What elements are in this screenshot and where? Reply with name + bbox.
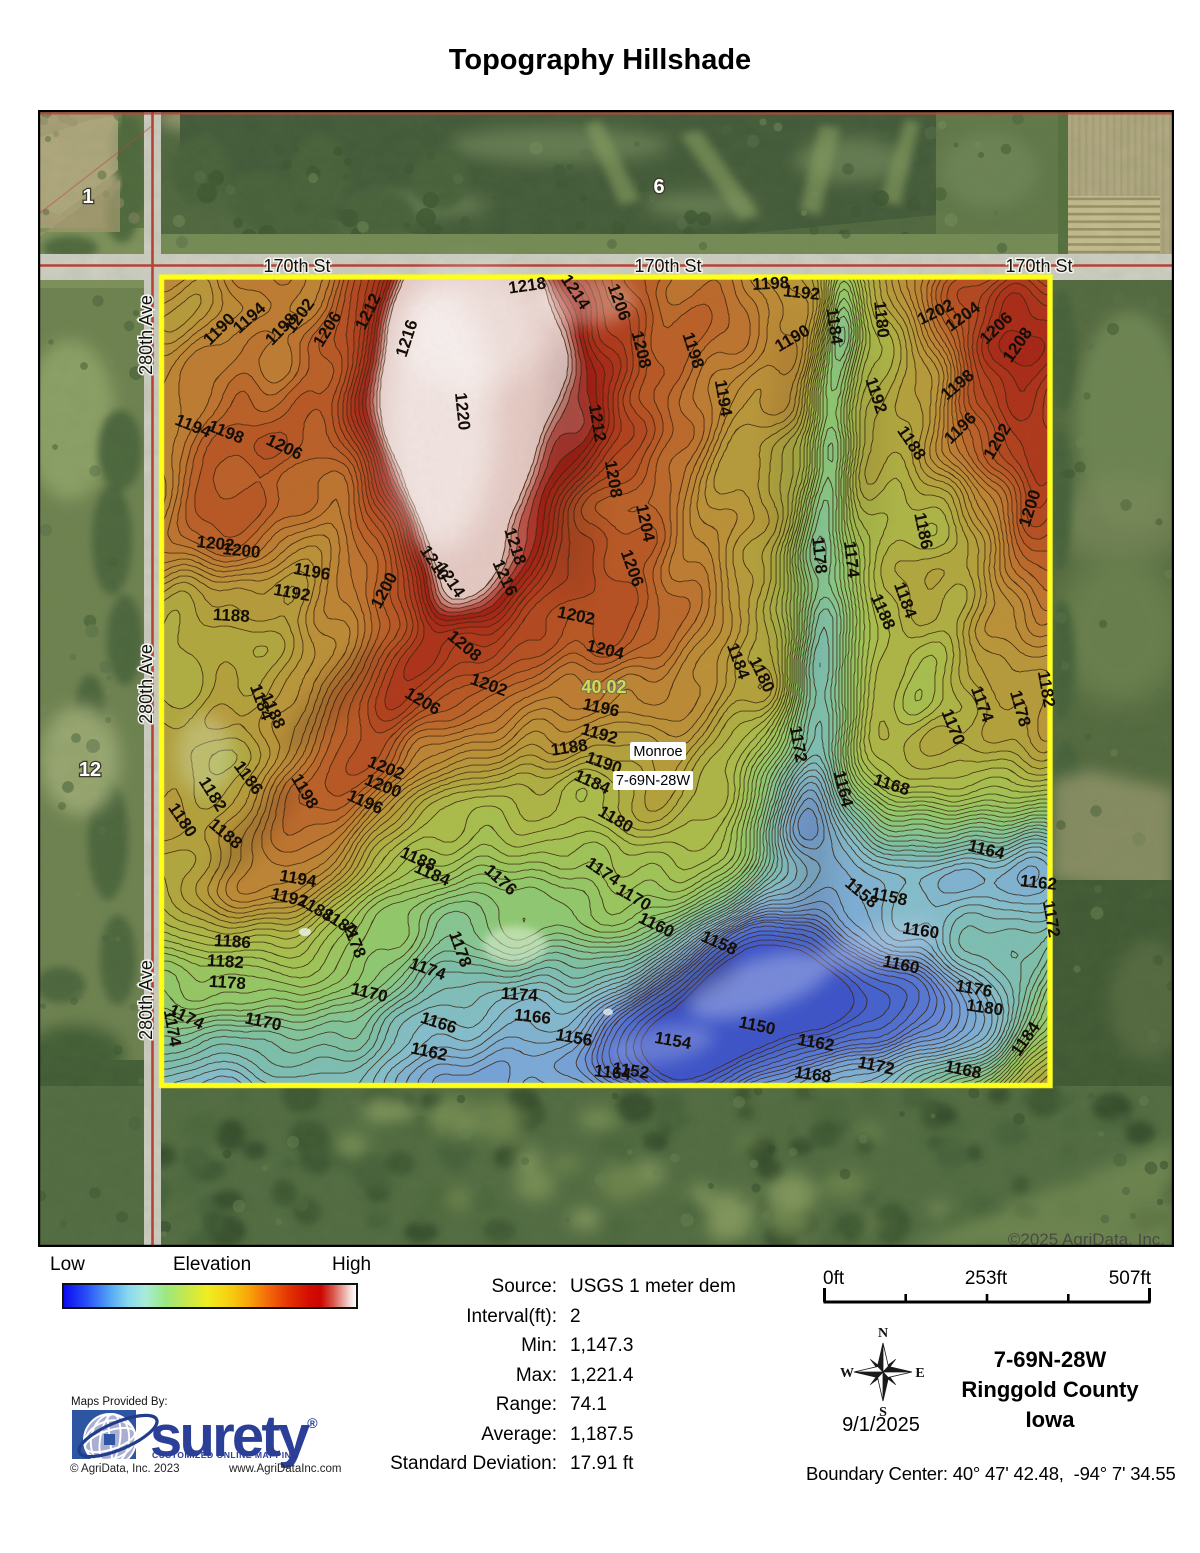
svg-text:1182: 1182: [206, 951, 244, 973]
svg-text:1188: 1188: [212, 605, 250, 626]
svg-text:280th Ave: 280th Ave: [136, 960, 156, 1040]
svg-text:Monroe: Monroe: [633, 744, 682, 760]
svg-text:12: 12: [79, 759, 101, 781]
svg-text:507ft: 507ft: [1109, 1268, 1152, 1289]
svg-text:170th St: 170th St: [634, 256, 701, 276]
svg-text:0ft: 0ft: [823, 1268, 845, 1289]
svg-text:1180: 1180: [870, 300, 893, 339]
svg-text:1166: 1166: [513, 1005, 552, 1028]
svg-text:1178: 1178: [208, 972, 246, 994]
svg-text:170th St: 170th St: [263, 256, 330, 276]
svg-text:1174: 1174: [840, 540, 863, 579]
svg-text:1174: 1174: [500, 984, 539, 1006]
svg-text:1220: 1220: [451, 392, 474, 432]
svg-text:7-69N-28W: 7-69N-28W: [616, 773, 690, 789]
svg-text:1178: 1178: [808, 536, 831, 575]
svg-text:1162: 1162: [1019, 871, 1058, 894]
svg-text:253ft: 253ft: [965, 1268, 1008, 1289]
svg-text:1: 1: [82, 186, 93, 208]
svg-text:1200: 1200: [222, 539, 262, 562]
svg-text:W: W: [840, 1366, 854, 1381]
svg-text:1164: 1164: [593, 1061, 632, 1084]
svg-text:40.02: 40.02: [581, 677, 626, 697]
svg-text:©2025 AgriData, Inc.: ©2025 AgriData, Inc.: [1008, 1230, 1165, 1247]
svg-text:1186: 1186: [213, 931, 251, 953]
svg-text:170th St: 170th St: [1005, 256, 1072, 276]
svg-text:6: 6: [653, 176, 664, 198]
svg-text:280th Ave: 280th Ave: [136, 295, 156, 375]
svg-text:280th Ave: 280th Ave: [136, 644, 156, 724]
svg-text:N: N: [878, 1328, 888, 1341]
svg-text:1192: 1192: [782, 281, 821, 304]
